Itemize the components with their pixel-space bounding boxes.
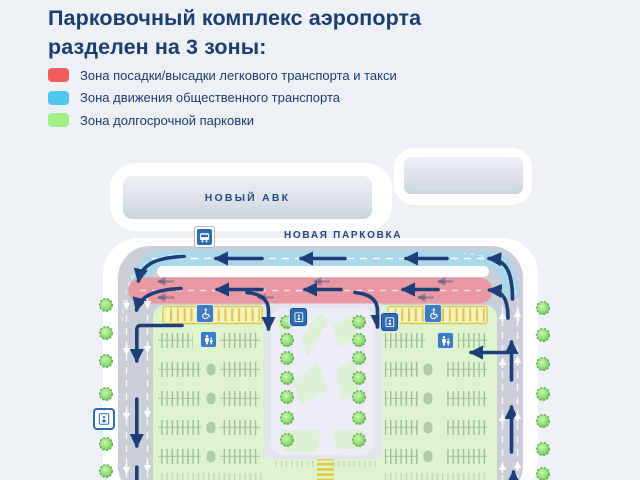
wheelchair-icon bbox=[196, 304, 214, 323]
traffic-arrow bbox=[490, 290, 509, 318]
parking-row bbox=[447, 449, 487, 464]
parking-row bbox=[158, 333, 193, 348]
elevator-icon bbox=[93, 408, 115, 430]
legend-item-public-transport: Зона движения общественного транспорта bbox=[48, 91, 397, 105]
tree-icon bbox=[281, 334, 294, 347]
traffic-arrow bbox=[137, 326, 182, 362]
legend-swatch-red bbox=[48, 68, 69, 82]
ring-road bbox=[118, 246, 523, 480]
tree-icon bbox=[281, 352, 294, 365]
parking-hatch-faint bbox=[272, 461, 316, 467]
plaza-lawn bbox=[337, 359, 359, 400]
plaza-lawn bbox=[293, 363, 327, 404]
plaza-lawn bbox=[333, 315, 357, 346]
parking-row-line bbox=[447, 398, 487, 399]
elevator-icon bbox=[381, 313, 398, 331]
map-outline bbox=[103, 238, 538, 480]
parking-row-line bbox=[158, 369, 201, 370]
tree-icon bbox=[100, 388, 113, 401]
parking-row-line bbox=[447, 369, 487, 370]
parking-row bbox=[385, 362, 418, 377]
hedge bbox=[424, 451, 433, 463]
parking-row bbox=[158, 449, 201, 464]
parking-row-line bbox=[385, 427, 418, 428]
tree-icon bbox=[537, 388, 550, 401]
parking-row-line bbox=[220, 427, 260, 428]
parking-row bbox=[220, 333, 260, 348]
traffic-arrow bbox=[355, 293, 378, 328]
parking-row bbox=[158, 420, 201, 435]
parking-row-line bbox=[447, 427, 487, 428]
elevator-icon bbox=[290, 308, 307, 326]
plaza-lawn bbox=[333, 430, 364, 450]
parking-hatch-faint bbox=[333, 461, 376, 467]
hedge bbox=[207, 364, 216, 376]
parking-row bbox=[220, 362, 260, 377]
legend-label: Зона долгосрочной парковки bbox=[80, 113, 254, 128]
parking-row bbox=[385, 391, 418, 406]
traffic-arrow bbox=[137, 289, 182, 311]
tree-icon bbox=[537, 358, 550, 371]
hedge bbox=[424, 422, 433, 434]
parking-row-line bbox=[158, 456, 201, 457]
lane-marking bbox=[123, 254, 181, 322]
parking-row bbox=[385, 333, 425, 348]
parking-row-line bbox=[385, 340, 425, 341]
legend-item-dropoff: Зона посадки/высадки легкового транспорт… bbox=[48, 68, 397, 82]
tree-icon bbox=[353, 316, 366, 329]
parking-row-line bbox=[447, 456, 487, 457]
legend-item-longterm: Зона долгосрочной парковки bbox=[48, 113, 397, 127]
hedge bbox=[207, 422, 216, 434]
public-transport-road bbox=[139, 259, 511, 300]
hedge bbox=[207, 451, 216, 463]
tree-icon bbox=[100, 355, 113, 368]
tree-icon bbox=[537, 415, 550, 428]
hedge bbox=[207, 393, 216, 405]
parking-row-line bbox=[458, 340, 487, 341]
parking-row bbox=[220, 449, 260, 464]
legend: Зона посадки/высадки легкового транспорт… bbox=[48, 68, 397, 136]
legend-swatch-blue bbox=[48, 91, 69, 105]
tree-icon bbox=[100, 299, 113, 312]
wheelchair-icon bbox=[424, 304, 442, 323]
faded-text-placeholder bbox=[415, 186, 513, 190]
secondary-building bbox=[404, 157, 523, 194]
parking-row-line bbox=[220, 456, 260, 457]
tree-icon bbox=[100, 327, 113, 340]
bus-stop-icon bbox=[194, 226, 215, 248]
parking-row-line bbox=[385, 398, 418, 399]
parking-row-line bbox=[385, 369, 418, 370]
page-title: Парковочный комплекс аэропортаразделен н… bbox=[48, 4, 421, 61]
tree-icon bbox=[353, 352, 366, 365]
central-corridor bbox=[263, 303, 382, 459]
tree-icon bbox=[100, 465, 113, 478]
parking-row-faint bbox=[385, 473, 487, 480]
tree-icon bbox=[353, 372, 366, 385]
parking-row bbox=[385, 449, 418, 464]
family-with-child-icon bbox=[200, 331, 217, 348]
tree-icon bbox=[281, 391, 294, 404]
parking-row-line bbox=[220, 340, 260, 341]
tree-icon bbox=[537, 443, 550, 456]
tree-icon bbox=[537, 302, 550, 315]
parking-infographic: Парковочный комплекс аэропортаразделен н… bbox=[0, 0, 640, 480]
parking-row-line bbox=[385, 456, 418, 457]
parking-row-line bbox=[220, 398, 260, 399]
header: Парковочный комплекс аэропортаразделен н… bbox=[48, 4, 421, 61]
central-plaza bbox=[271, 308, 374, 455]
terminal-building: НОВЫЙ АВК bbox=[123, 176, 372, 219]
parking-row bbox=[220, 420, 260, 435]
tree-icon bbox=[281, 434, 294, 447]
parking-row bbox=[447, 362, 487, 377]
plaza-lawn bbox=[283, 430, 321, 452]
parking-row-line bbox=[158, 427, 201, 428]
tree-icon bbox=[353, 434, 366, 447]
parking-row-line bbox=[158, 340, 193, 341]
tree-icon bbox=[353, 391, 366, 404]
parking-row bbox=[220, 391, 260, 406]
tree-icon bbox=[537, 468, 550, 480]
tree-icon bbox=[100, 438, 113, 451]
hedge bbox=[424, 393, 433, 405]
legend-label: Зона посадки/высадки легкового транспорт… bbox=[80, 68, 397, 83]
crosswalk bbox=[317, 459, 334, 480]
parking-row-line bbox=[220, 369, 260, 370]
tree-icon bbox=[281, 412, 294, 425]
parking-row-line bbox=[158, 398, 201, 399]
parking-row bbox=[458, 333, 487, 348]
hedge bbox=[424, 364, 433, 376]
terminal-building-label: НОВЫЙ АВК bbox=[205, 192, 290, 204]
parking-row bbox=[385, 420, 418, 435]
parking-row bbox=[447, 420, 487, 435]
traffic-arrow bbox=[139, 257, 185, 282]
tree-icon bbox=[353, 412, 366, 425]
parking-area-label: НОВАЯ ПАРКОВКА bbox=[284, 230, 402, 241]
traffic-arrow bbox=[489, 259, 513, 300]
tree-icon bbox=[281, 372, 294, 385]
tree-icon bbox=[537, 329, 550, 342]
traffic-arrow bbox=[247, 293, 269, 330]
tree-icon bbox=[353, 334, 366, 347]
parking-row bbox=[447, 391, 487, 406]
lane-marking bbox=[464, 253, 519, 322]
family-with-child-icon bbox=[437, 332, 454, 349]
parking-row bbox=[158, 362, 201, 377]
legend-label: Зона движения общественного транспорта bbox=[80, 90, 340, 105]
parking-row-faint bbox=[158, 473, 262, 480]
legend-swatch-green bbox=[48, 113, 69, 127]
parking-row bbox=[158, 391, 201, 406]
